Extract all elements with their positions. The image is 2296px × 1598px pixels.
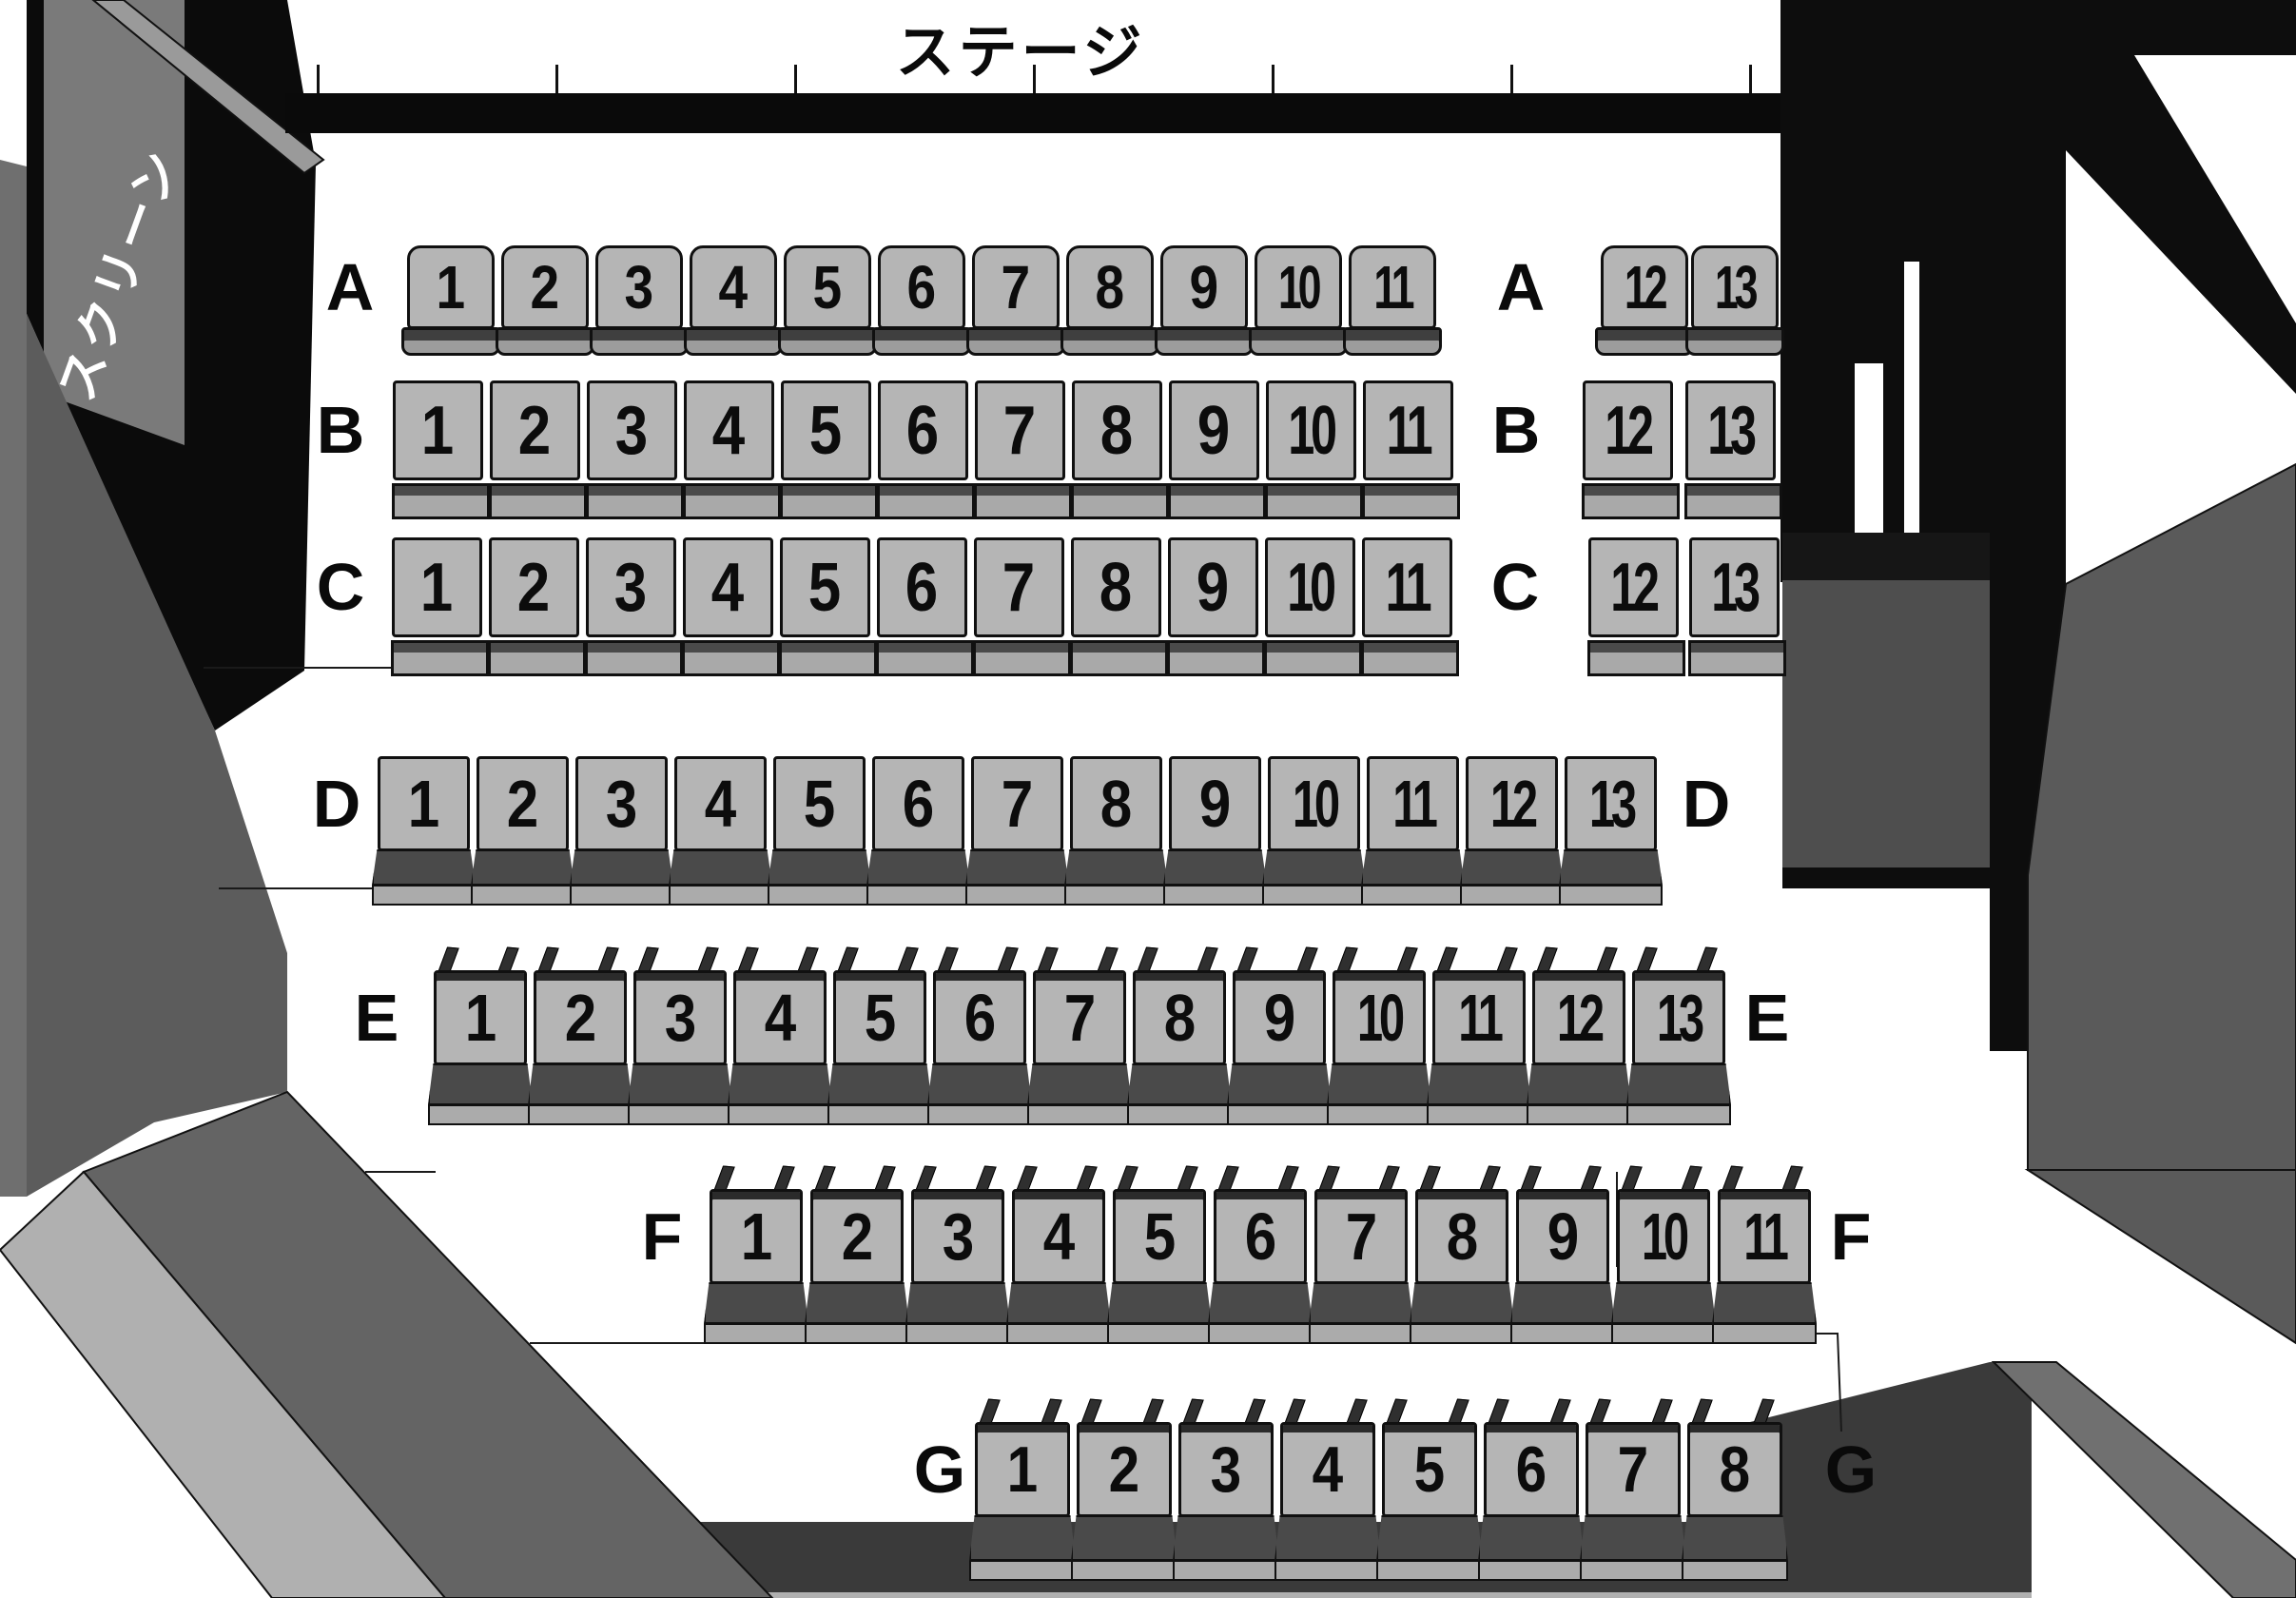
seat-C-4[interactable]: 4: [683, 537, 773, 676]
seat-cushion: [805, 1282, 909, 1324]
seat-cushion: [1064, 849, 1168, 886]
seat-number: 10: [1288, 554, 1333, 622]
seat-number: 13: [1708, 397, 1754, 465]
seat-number: 4: [711, 554, 744, 622]
seat-A-13[interactable]: 13: [1691, 245, 1779, 356]
seat-number: 11: [1392, 770, 1433, 837]
seat-number: 11: [1743, 1203, 1784, 1270]
seat-base: [1071, 1560, 1177, 1581]
seat-number: 3: [625, 257, 654, 318]
seat-B-11[interactable]: 11: [1363, 380, 1453, 519]
seat-cushion: [1343, 327, 1442, 356]
seat-number: 12: [1605, 397, 1651, 465]
seat-number: 6: [1516, 1437, 1547, 1502]
seat-D-4[interactable]: 4: [674, 756, 767, 906]
seat-E-6[interactable]: 6: [933, 970, 1026, 1125]
seat-C-3[interactable]: 3: [586, 537, 676, 676]
seat-number: 3: [942, 1203, 973, 1270]
seat-number: 3: [614, 554, 647, 622]
seat-cushion: [1274, 1515, 1381, 1561]
row-label-D-left: D: [284, 758, 389, 849]
seat-back: 8: [1415, 1189, 1508, 1284]
seat-A-5[interactable]: 5: [784, 245, 871, 356]
seat-E-3[interactable]: 3: [633, 970, 727, 1125]
seat-back: 7: [1586, 1422, 1681, 1517]
seat-back: 9: [1169, 756, 1261, 851]
seat-D-3[interactable]: 3: [575, 756, 668, 906]
seat-C-11[interactable]: 11: [1362, 537, 1452, 676]
seat-number: 4: [705, 770, 736, 837]
stage-label: ステージ: [640, 4, 1401, 89]
seat-E-5[interactable]: 5: [833, 970, 926, 1125]
seat-F-4[interactable]: 4: [1012, 1189, 1105, 1344]
seat-A-10[interactable]: 10: [1255, 245, 1342, 356]
seat-cushion: [684, 327, 783, 356]
seat-number: 11: [1386, 554, 1429, 622]
seat-back: 11: [1432, 970, 1526, 1065]
seat-back: 9: [1168, 537, 1258, 637]
row-label-D-right: D: [1654, 758, 1759, 849]
seat-cushion: [372, 849, 476, 886]
seat-cushion: [1006, 1282, 1111, 1324]
seat-back: 1: [975, 1422, 1070, 1517]
seat-cushion: [401, 327, 500, 356]
seat-base: [1559, 885, 1663, 906]
seat-cushion: [1410, 1282, 1514, 1324]
seat-C-8[interactable]: 8: [1071, 537, 1161, 676]
seat-F-9[interactable]: 9: [1516, 1189, 1609, 1344]
seat-back: 6: [878, 380, 968, 480]
seat-number: 3: [615, 397, 648, 465]
seat-A-4[interactable]: 4: [690, 245, 777, 356]
seat-base: [1264, 640, 1362, 676]
seat-number: 12: [1625, 257, 1664, 318]
seat-C-7[interactable]: 7: [974, 537, 1064, 676]
seat-base: [1361, 885, 1465, 906]
seat-D-10[interactable]: 10: [1268, 756, 1360, 906]
seat-B-10[interactable]: 10: [1266, 380, 1356, 519]
seat-cushion: [1460, 849, 1564, 886]
seat-back: 4: [733, 970, 827, 1065]
seat-G-7[interactable]: 7: [1586, 1422, 1681, 1581]
seat-back: 1: [710, 1189, 803, 1284]
seat-base: [1168, 483, 1266, 519]
seat-cushion: [1685, 327, 1784, 356]
seat-base: [728, 1104, 832, 1125]
seat-cushion: [496, 327, 594, 356]
seat-back: 12: [1601, 245, 1688, 329]
seat-number: 1: [1007, 1437, 1039, 1502]
seat-cushion: [1595, 327, 1694, 356]
seat-G-2[interactable]: 2: [1077, 1422, 1172, 1581]
row-label-G-right: G: [1799, 1424, 1903, 1515]
seat-A-6[interactable]: 6: [878, 245, 965, 356]
seat-base: [905, 1323, 1010, 1344]
seat-back: 4: [690, 245, 777, 329]
seat-F-6[interactable]: 6: [1214, 1189, 1307, 1344]
seat-base: [1376, 1560, 1483, 1581]
seat-cushion: [570, 849, 673, 886]
seat-base: [1410, 1323, 1514, 1344]
seat-C-6[interactable]: 6: [877, 537, 967, 676]
seat-base: [1208, 1323, 1313, 1344]
seat-base: [1006, 1323, 1111, 1344]
seat-cushion: [628, 1063, 732, 1105]
seat-base: [927, 1104, 1032, 1125]
seat-back: 2: [501, 245, 589, 329]
seat-A-9[interactable]: 9: [1160, 245, 1248, 356]
seat-back: 7: [975, 380, 1065, 480]
seat-A-1[interactable]: 1: [407, 245, 495, 356]
seat-F-2[interactable]: 2: [810, 1189, 904, 1344]
seat-A-11[interactable]: 11: [1349, 245, 1436, 356]
seat-base: [1064, 885, 1168, 906]
seat-F-8[interactable]: 8: [1415, 1189, 1508, 1344]
seat-cushion: [1249, 327, 1348, 356]
seat-base: [827, 1104, 932, 1125]
seat-number: 2: [531, 257, 560, 318]
seat-number: 13: [1657, 984, 1701, 1051]
row-label-F-right: F: [1799, 1191, 1903, 1282]
seat-base: [1688, 640, 1786, 676]
seat-B-2[interactable]: 2: [490, 380, 580, 519]
seat-back: 12: [1588, 537, 1679, 637]
seat-E-13[interactable]: 13: [1632, 970, 1725, 1125]
seat-B-12[interactable]: 12: [1583, 380, 1673, 519]
seat-number: 8: [1100, 770, 1132, 837]
seat-back: 4: [683, 537, 773, 637]
seat-F-3[interactable]: 3: [911, 1189, 1004, 1344]
seat-number: 8: [1099, 554, 1132, 622]
seat-base: [586, 483, 684, 519]
seat-back: 4: [1280, 1422, 1375, 1517]
seat-D-12[interactable]: 12: [1466, 756, 1558, 906]
seat-D-9[interactable]: 9: [1169, 756, 1261, 906]
seat-number: 5: [1414, 1437, 1446, 1502]
seat-base: [965, 885, 1069, 906]
seat-base: [866, 885, 970, 906]
seat-cushion: [1227, 1063, 1332, 1105]
seat-cushion: [1478, 1515, 1585, 1561]
seat-number: 5: [1143, 1203, 1175, 1270]
seat-back: 13: [1691, 245, 1779, 329]
seat-C-12[interactable]: 12: [1588, 537, 1679, 676]
seat-E-8[interactable]: 8: [1133, 970, 1226, 1125]
seat-base: [528, 1104, 632, 1125]
seat-cushion: [1527, 1063, 1631, 1105]
seat-base: [683, 483, 781, 519]
row-label-B-right: B: [1464, 384, 1568, 476]
seat-back: 6: [1214, 1189, 1307, 1284]
row-label-A-left: A: [298, 242, 402, 333]
seat-number: 2: [841, 1203, 872, 1270]
seat-number: 10: [1357, 984, 1401, 1051]
seat-back: 11: [1367, 756, 1459, 851]
seat-back: 1: [392, 537, 482, 637]
seat-G-5[interactable]: 5: [1382, 1422, 1477, 1581]
seat-number: 7: [1063, 984, 1095, 1051]
seat-number: 12: [1557, 984, 1601, 1051]
seat-base: [1173, 1560, 1279, 1581]
seat-back: 8: [1071, 537, 1161, 637]
seat-C-9[interactable]: 9: [1168, 537, 1258, 676]
seat-back: 7: [974, 537, 1064, 637]
seat-cushion: [827, 1063, 932, 1105]
seat-number: 2: [1109, 1437, 1140, 1502]
seat-base: [1362, 483, 1460, 519]
seat-number: 4: [712, 397, 745, 465]
seat-C-2[interactable]: 2: [489, 537, 579, 676]
seat-back: 2: [490, 380, 580, 480]
seat-back: 9: [1516, 1189, 1609, 1284]
row-label-B-left: B: [288, 384, 393, 476]
seat-D-7[interactable]: 7: [971, 756, 1063, 906]
seat-back: 5: [1113, 1189, 1206, 1284]
seat-E-9[interactable]: 9: [1233, 970, 1326, 1125]
seat-back: 10: [1265, 537, 1355, 637]
seat-A-7[interactable]: 7: [972, 245, 1060, 356]
seat-A-8[interactable]: 8: [1066, 245, 1154, 356]
seat-back: 4: [684, 380, 774, 480]
seat-back: 3: [575, 756, 668, 851]
seat-cushion: [1173, 1515, 1279, 1561]
seat-back: 2: [1077, 1422, 1172, 1517]
seat-number: 9: [1263, 984, 1294, 1051]
seat-back: 5: [833, 970, 926, 1065]
seat-cushion: [1327, 1063, 1431, 1105]
seat-base: [969, 1560, 1076, 1581]
seat-base: [471, 885, 574, 906]
seat-cushion: [528, 1063, 632, 1105]
seat-base: [669, 885, 772, 906]
seat-number: 7: [1002, 554, 1035, 622]
seat-back: 12: [1532, 970, 1625, 1065]
seat-A-3[interactable]: 3: [595, 245, 683, 356]
seat-base: [1361, 640, 1459, 676]
seat-E-10[interactable]: 10: [1333, 970, 1426, 1125]
seat-number: 4: [1313, 1437, 1344, 1502]
seat-back: 4: [674, 756, 767, 851]
seat-number: 1: [408, 770, 439, 837]
seat-cushion: [590, 327, 689, 356]
seat-base: [585, 640, 683, 676]
seat-back: 6: [872, 756, 964, 851]
seat-back: 13: [1689, 537, 1780, 637]
seat-back: 10: [1268, 756, 1360, 851]
seat-G-4[interactable]: 4: [1280, 1422, 1375, 1581]
seat-back: 9: [1160, 245, 1248, 329]
seat-number: 10: [1278, 257, 1317, 318]
seat-number: 6: [963, 984, 995, 1051]
seat-B-8[interactable]: 8: [1072, 380, 1162, 519]
seat-B-3[interactable]: 3: [587, 380, 677, 519]
seat-base: [1478, 1560, 1585, 1581]
seat-D-1[interactable]: 1: [378, 756, 470, 906]
seat-A-2[interactable]: 2: [501, 245, 589, 356]
seat-number: 7: [1002, 257, 1031, 318]
seat-F-10[interactable]: 10: [1617, 1189, 1710, 1344]
seat-E-7[interactable]: 7: [1033, 970, 1126, 1125]
seat-back: 3: [595, 245, 683, 329]
seat-base: [1070, 640, 1168, 676]
row-label-C-right: C: [1463, 541, 1567, 633]
seat-cushion: [965, 849, 1069, 886]
seat-B-4[interactable]: 4: [684, 380, 774, 519]
seat-cushion: [728, 1063, 832, 1105]
seat-E-11[interactable]: 11: [1432, 970, 1526, 1125]
seat-back: 8: [1070, 756, 1162, 851]
seat-base: [768, 885, 871, 906]
seat-F-5[interactable]: 5: [1113, 1189, 1206, 1344]
seat-base: [372, 885, 476, 906]
seat-B-5[interactable]: 5: [781, 380, 871, 519]
seat-back: 1: [378, 756, 470, 851]
seat-cushion: [905, 1282, 1010, 1324]
seat-E-4[interactable]: 4: [733, 970, 827, 1125]
seat-base: [1027, 1104, 1132, 1125]
seat-number: 12: [1611, 554, 1657, 622]
seat-G-6[interactable]: 6: [1484, 1422, 1579, 1581]
seat-cushion: [768, 849, 871, 886]
seat-number: 11: [1458, 984, 1499, 1051]
seat-cushion: [1060, 327, 1159, 356]
seat-base: [1712, 1323, 1817, 1344]
seat-base: [1510, 1323, 1615, 1344]
seat-D-2[interactable]: 2: [477, 756, 569, 906]
seat-number: 9: [1547, 1203, 1578, 1270]
seat-cushion: [927, 1063, 1032, 1105]
seat-C-10[interactable]: 10: [1265, 537, 1355, 676]
seat-layer: AA12345678910111213BB12345678910111213CC…: [0, 0, 2296, 1598]
seat-base: [1682, 1560, 1788, 1581]
seat-back: 2: [810, 1189, 904, 1284]
seat-base: [1527, 1104, 1631, 1125]
seat-base: [392, 483, 490, 519]
seat-back: 7: [971, 756, 1063, 851]
seat-B-1[interactable]: 1: [393, 380, 483, 519]
seat-A-12[interactable]: 12: [1601, 245, 1688, 356]
seat-number: 2: [507, 770, 538, 837]
seat-back: 3: [1178, 1422, 1274, 1517]
seat-base: [1309, 1323, 1413, 1344]
seat-F-7[interactable]: 7: [1314, 1189, 1408, 1344]
seat-number: 10: [1642, 1203, 1685, 1270]
seat-G-3[interactable]: 3: [1178, 1422, 1274, 1581]
seat-number: 7: [1345, 1203, 1376, 1270]
seat-number: 6: [903, 770, 934, 837]
seat-cushion: [1361, 849, 1465, 886]
seat-cushion: [1127, 1063, 1232, 1105]
seat-D-5[interactable]: 5: [773, 756, 866, 906]
seat-back: 11: [1718, 1189, 1811, 1284]
seat-B-9[interactable]: 9: [1169, 380, 1259, 519]
seat-B-6[interactable]: 6: [878, 380, 968, 519]
seat-number: 4: [719, 257, 749, 318]
seat-number: 3: [1211, 1437, 1242, 1502]
seat-cushion: [1611, 1282, 1716, 1324]
seat-B-7[interactable]: 7: [975, 380, 1065, 519]
seat-number: 3: [606, 770, 637, 837]
seat-base: [489, 483, 587, 519]
seat-D-11[interactable]: 11: [1367, 756, 1459, 906]
row-label-E-right: E: [1715, 972, 1819, 1063]
seat-cushion: [1712, 1282, 1817, 1324]
seat-base: [428, 1104, 533, 1125]
seat-back: 4: [1012, 1189, 1105, 1284]
seat-D-13[interactable]: 13: [1565, 756, 1657, 906]
seat-base: [570, 885, 673, 906]
seat-number: 6: [905, 554, 938, 622]
seat-B-13[interactable]: 13: [1685, 380, 1776, 519]
seat-cushion: [704, 1282, 808, 1324]
seat-base: [1167, 640, 1265, 676]
seat-back: 11: [1349, 245, 1436, 329]
seat-back: 9: [1233, 970, 1326, 1065]
seat-F-11[interactable]: 11: [1718, 1189, 1811, 1344]
seat-cushion: [1559, 849, 1663, 886]
seat-back: 13: [1632, 970, 1725, 1065]
seat-D-8[interactable]: 8: [1070, 756, 1162, 906]
seat-back: 2: [489, 537, 579, 637]
seat-back: 3: [586, 537, 676, 637]
seat-base: [1107, 1323, 1212, 1344]
seat-back: 10: [1255, 245, 1342, 329]
seat-number: 12: [1489, 770, 1533, 837]
seat-cushion: [1682, 1515, 1788, 1561]
seat-back: 8: [1133, 970, 1226, 1065]
seat-number: 1: [420, 554, 453, 622]
seat-number: 13: [1588, 770, 1632, 837]
seat-number: 1: [437, 257, 466, 318]
seat-back: 11: [1363, 380, 1453, 480]
seat-base: [682, 640, 780, 676]
seat-F-1[interactable]: 1: [710, 1189, 803, 1344]
seat-back: 8: [1687, 1422, 1782, 1517]
seat-C-13[interactable]: 13: [1689, 537, 1780, 676]
seat-cushion: [428, 1063, 533, 1105]
seat-number: 6: [906, 397, 939, 465]
seat-D-6[interactable]: 6: [872, 756, 964, 906]
seat-number: 5: [864, 984, 895, 1051]
seat-cushion: [1027, 1063, 1132, 1105]
seat-back: 1: [393, 380, 483, 480]
seat-E-2[interactable]: 2: [534, 970, 627, 1125]
seat-back: 13: [1565, 756, 1657, 851]
seat-back: 13: [1685, 380, 1776, 480]
seat-G-8[interactable]: 8: [1687, 1422, 1782, 1581]
seat-number: 2: [564, 984, 595, 1051]
seat-back: 6: [877, 537, 967, 637]
seat-C-5[interactable]: 5: [780, 537, 870, 676]
seat-C-1[interactable]: 1: [392, 537, 482, 676]
seat-number: 4: [1042, 1203, 1074, 1270]
seat-base: [1163, 885, 1267, 906]
seat-back: 6: [1484, 1422, 1579, 1517]
seat-number: 9: [1199, 770, 1231, 837]
seat-base: [1580, 1560, 1686, 1581]
seat-base: [628, 1104, 732, 1125]
seat-E-12[interactable]: 12: [1532, 970, 1625, 1125]
seat-cushion: [778, 327, 877, 356]
seat-back: 3: [633, 970, 727, 1065]
seat-back: 10: [1617, 1189, 1710, 1284]
seat-E-1[interactable]: 1: [434, 970, 527, 1125]
seat-G-1[interactable]: 1: [975, 1422, 1070, 1581]
seat-base: [1611, 1323, 1716, 1344]
seat-cushion: [1163, 849, 1267, 886]
seat-number: 1: [464, 984, 496, 1051]
seat-base: [1227, 1104, 1332, 1125]
